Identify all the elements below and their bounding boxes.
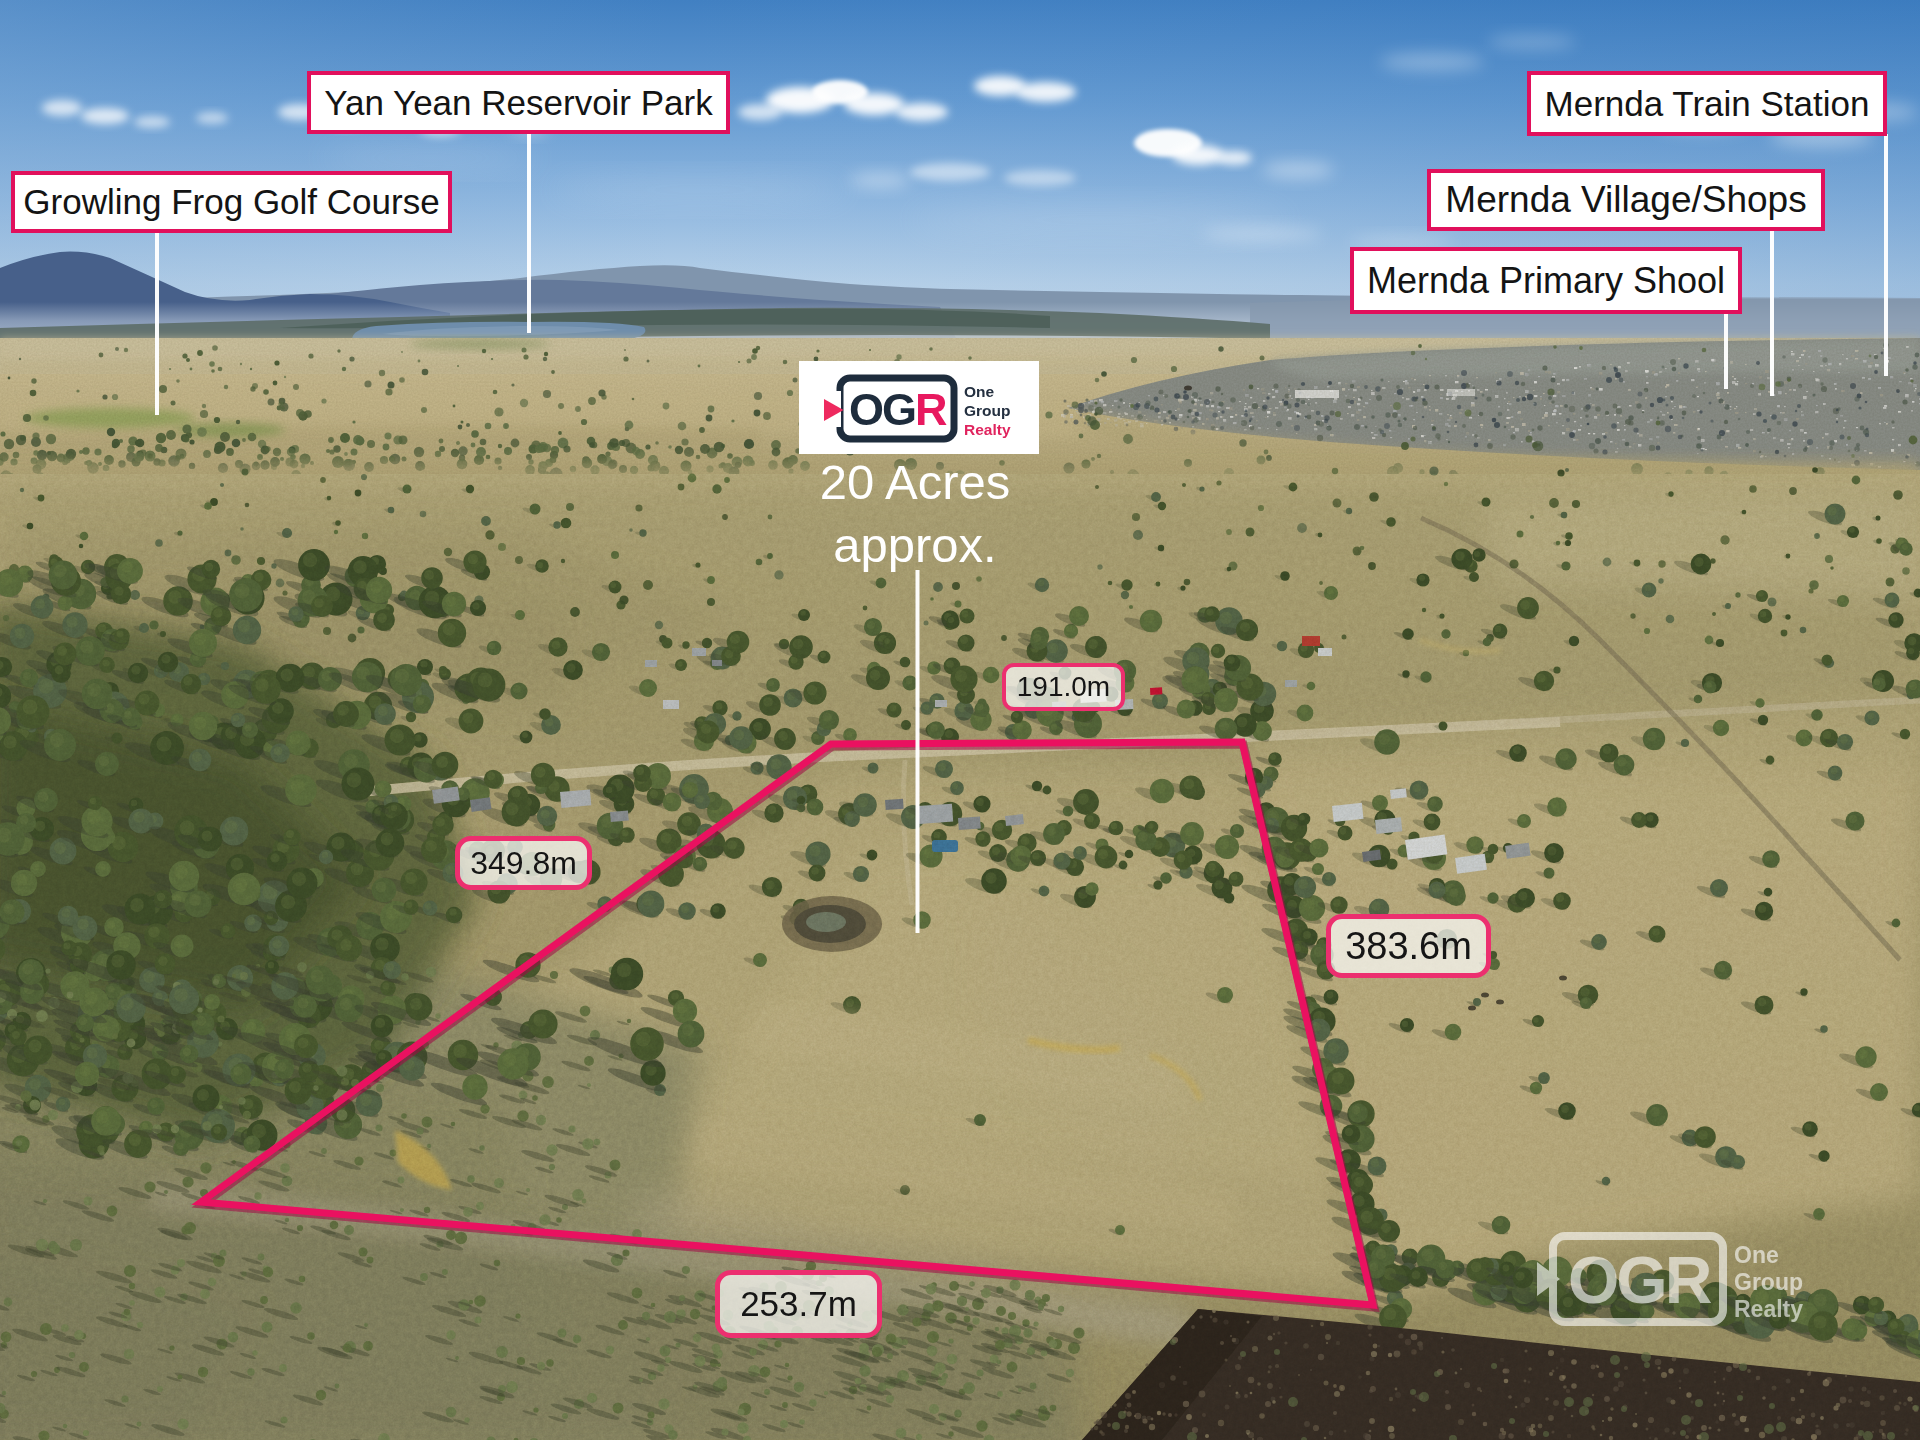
svg-text:One: One <box>964 383 995 400</box>
svg-text:OGR: OGR <box>1568 1243 1712 1317</box>
svg-text:Realty: Realty <box>1734 1296 1803 1322</box>
svg-text:OGR: OGR <box>849 384 947 435</box>
svg-text:Group: Group <box>964 402 1011 419</box>
svg-text:Realty: Realty <box>964 421 1011 438</box>
svg-text:One: One <box>1734 1242 1779 1268</box>
svg-text:Group: Group <box>1734 1269 1803 1295</box>
